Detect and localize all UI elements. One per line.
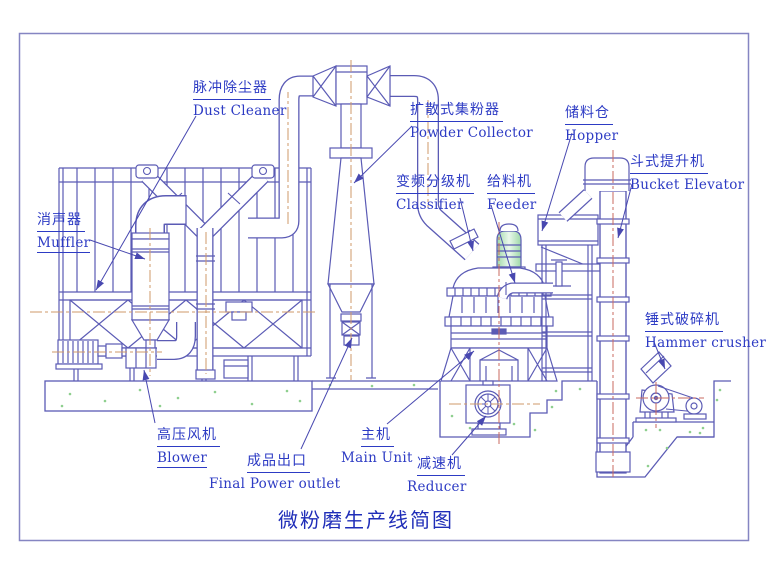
hopper-and-feeder bbox=[536, 215, 600, 381]
label-final-powder-outlet-en: Final Power outlet bbox=[209, 476, 340, 492]
engineering-drawing: 脉冲除尘器 Dust Cleaner 扩散式集粉器 Powder Collect… bbox=[0, 0, 768, 583]
label-classifier-en: Classifier bbox=[396, 197, 464, 213]
label-muffler-zh: 消声器 bbox=[37, 212, 85, 232]
label-main-unit-zh: 主机 bbox=[361, 427, 394, 447]
diagram-title: 微粉磨生产线简图 bbox=[278, 504, 454, 533]
label-bucket-elevator-en: Bucket Elevator bbox=[630, 177, 744, 193]
label-feeder: 给料机 Feeder bbox=[487, 171, 537, 214]
blower bbox=[56, 340, 156, 369]
label-hammer-crusher-zh: 锤式破碎机 bbox=[645, 312, 723, 332]
label-hopper: 储料仓 Hopper bbox=[565, 102, 618, 145]
label-blower-en: Blower bbox=[157, 450, 207, 469]
label-feeder-en: Feeder bbox=[487, 197, 537, 213]
label-muffler-en: Muffler bbox=[37, 235, 90, 254]
label-hammer-crusher: 锤式破碎机 Hammer crusher bbox=[645, 309, 766, 352]
leader-lines bbox=[90, 116, 665, 455]
label-reducer: 减速机 Reducer bbox=[417, 453, 467, 496]
label-powder-collector-en: Powder Collector bbox=[410, 125, 533, 141]
label-dust-cleaner-en: Dust Cleaner bbox=[193, 103, 287, 119]
label-bucket-elevator-zh: 斗式提升机 bbox=[630, 154, 708, 174]
label-bucket-elevator: 斗式提升机 Bucket Elevator bbox=[630, 151, 744, 194]
reducer bbox=[466, 381, 510, 435]
label-powder-collector-zh: 扩散式集粉器 bbox=[410, 102, 503, 122]
label-hammer-crusher-en: Hammer crusher bbox=[645, 335, 766, 351]
label-hopper-en: Hopper bbox=[565, 128, 618, 144]
label-dust-cleaner-zh: 脉冲除尘器 bbox=[193, 80, 271, 100]
label-blower: 高压风机 Blower bbox=[157, 424, 220, 468]
label-hopper-zh: 储料仓 bbox=[565, 105, 613, 125]
label-main-unit: 主机 Main Unit bbox=[361, 424, 413, 467]
label-classifier-zh: 变频分级机 bbox=[396, 174, 474, 194]
label-final-powder-outlet-zh: 成品出口 bbox=[247, 453, 310, 473]
diagram-artwork bbox=[0, 0, 768, 583]
label-final-powder-outlet: 成品出口 Final Power outlet bbox=[247, 450, 340, 493]
label-feeder-zh: 给料机 bbox=[487, 174, 535, 194]
label-reducer-en: Reducer bbox=[407, 479, 467, 495]
label-reducer-zh: 减速机 bbox=[417, 456, 465, 476]
label-powder-collector: 扩散式集粉器 Powder Collector bbox=[410, 99, 533, 142]
label-blower-zh: 高压风机 bbox=[157, 427, 220, 447]
hammer-crusher bbox=[636, 352, 706, 422]
label-dust-cleaner: 脉冲除尘器 Dust Cleaner bbox=[193, 77, 287, 120]
label-main-unit-en: Main Unit bbox=[341, 450, 413, 466]
label-classifier: 变频分级机 Classifier bbox=[396, 171, 474, 214]
label-muffler: 消声器 Muffler bbox=[37, 209, 90, 253]
